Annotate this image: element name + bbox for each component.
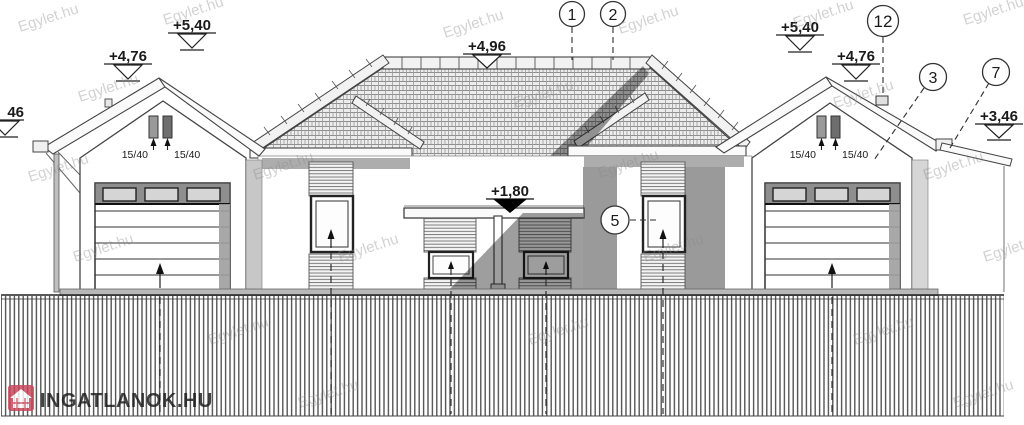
svg-text:+4,96: +4,96 — [468, 38, 506, 55]
axis-bubble-3: 3 — [920, 64, 947, 91]
svg-text:12: 12 — [874, 12, 893, 31]
wall-shaded-strip — [685, 167, 725, 292]
front-elevation-svg: 1 2 12 3 7 5 46 + — [0, 0, 1024, 425]
svg-text:15/40: 15/40 — [790, 149, 816, 161]
axis-bubble-5: 5 — [601, 206, 629, 234]
garage-door-window — [857, 188, 890, 201]
svg-text:3: 3 — [929, 70, 938, 87]
axis-bubble-7: 7 — [983, 59, 1010, 86]
svg-text:7: 7 — [992, 65, 1001, 82]
garage-door-window — [103, 188, 136, 201]
left-roof-vent — [105, 99, 112, 107]
elevation-drawing: 1 2 12 3 7 5 46 + — [0, 0, 1024, 425]
svg-text:+1,80: +1,80 — [491, 183, 529, 200]
garage-door-window — [145, 188, 178, 201]
logo-text: INGATLANOK.HU — [40, 390, 213, 412]
axis-bubble-1: 1 — [560, 2, 585, 27]
svg-text:+3,46: +3,46 — [980, 108, 1018, 125]
left-gutter-end — [33, 141, 48, 152]
garage-door-window — [187, 188, 220, 201]
svg-text:1: 1 — [568, 7, 577, 24]
right-garage-door — [765, 183, 900, 292]
right-window-column — [641, 162, 685, 292]
svg-text:+4,76: +4,76 — [837, 48, 875, 65]
garage-door-window — [815, 188, 848, 201]
ridge-cap-tiles — [383, 57, 650, 69]
center-walls — [258, 156, 752, 292]
svg-text:46: 46 — [7, 104, 24, 121]
svg-text:15/40: 15/40 — [174, 149, 200, 161]
gable-vent — [149, 116, 158, 138]
svg-text:5: 5 — [611, 213, 620, 230]
gable-vent — [817, 116, 826, 138]
garage-door-window — [773, 188, 806, 201]
svg-text:+4,76: +4,76 — [109, 48, 147, 65]
svg-text:15/40: 15/40 — [842, 149, 868, 161]
gable-vent — [163, 116, 172, 138]
left-window-column — [309, 162, 353, 292]
svg-text:15/40: 15/40 — [122, 149, 148, 161]
gable-vent — [831, 116, 840, 138]
axis-bubble-12: 12 — [868, 6, 899, 37]
